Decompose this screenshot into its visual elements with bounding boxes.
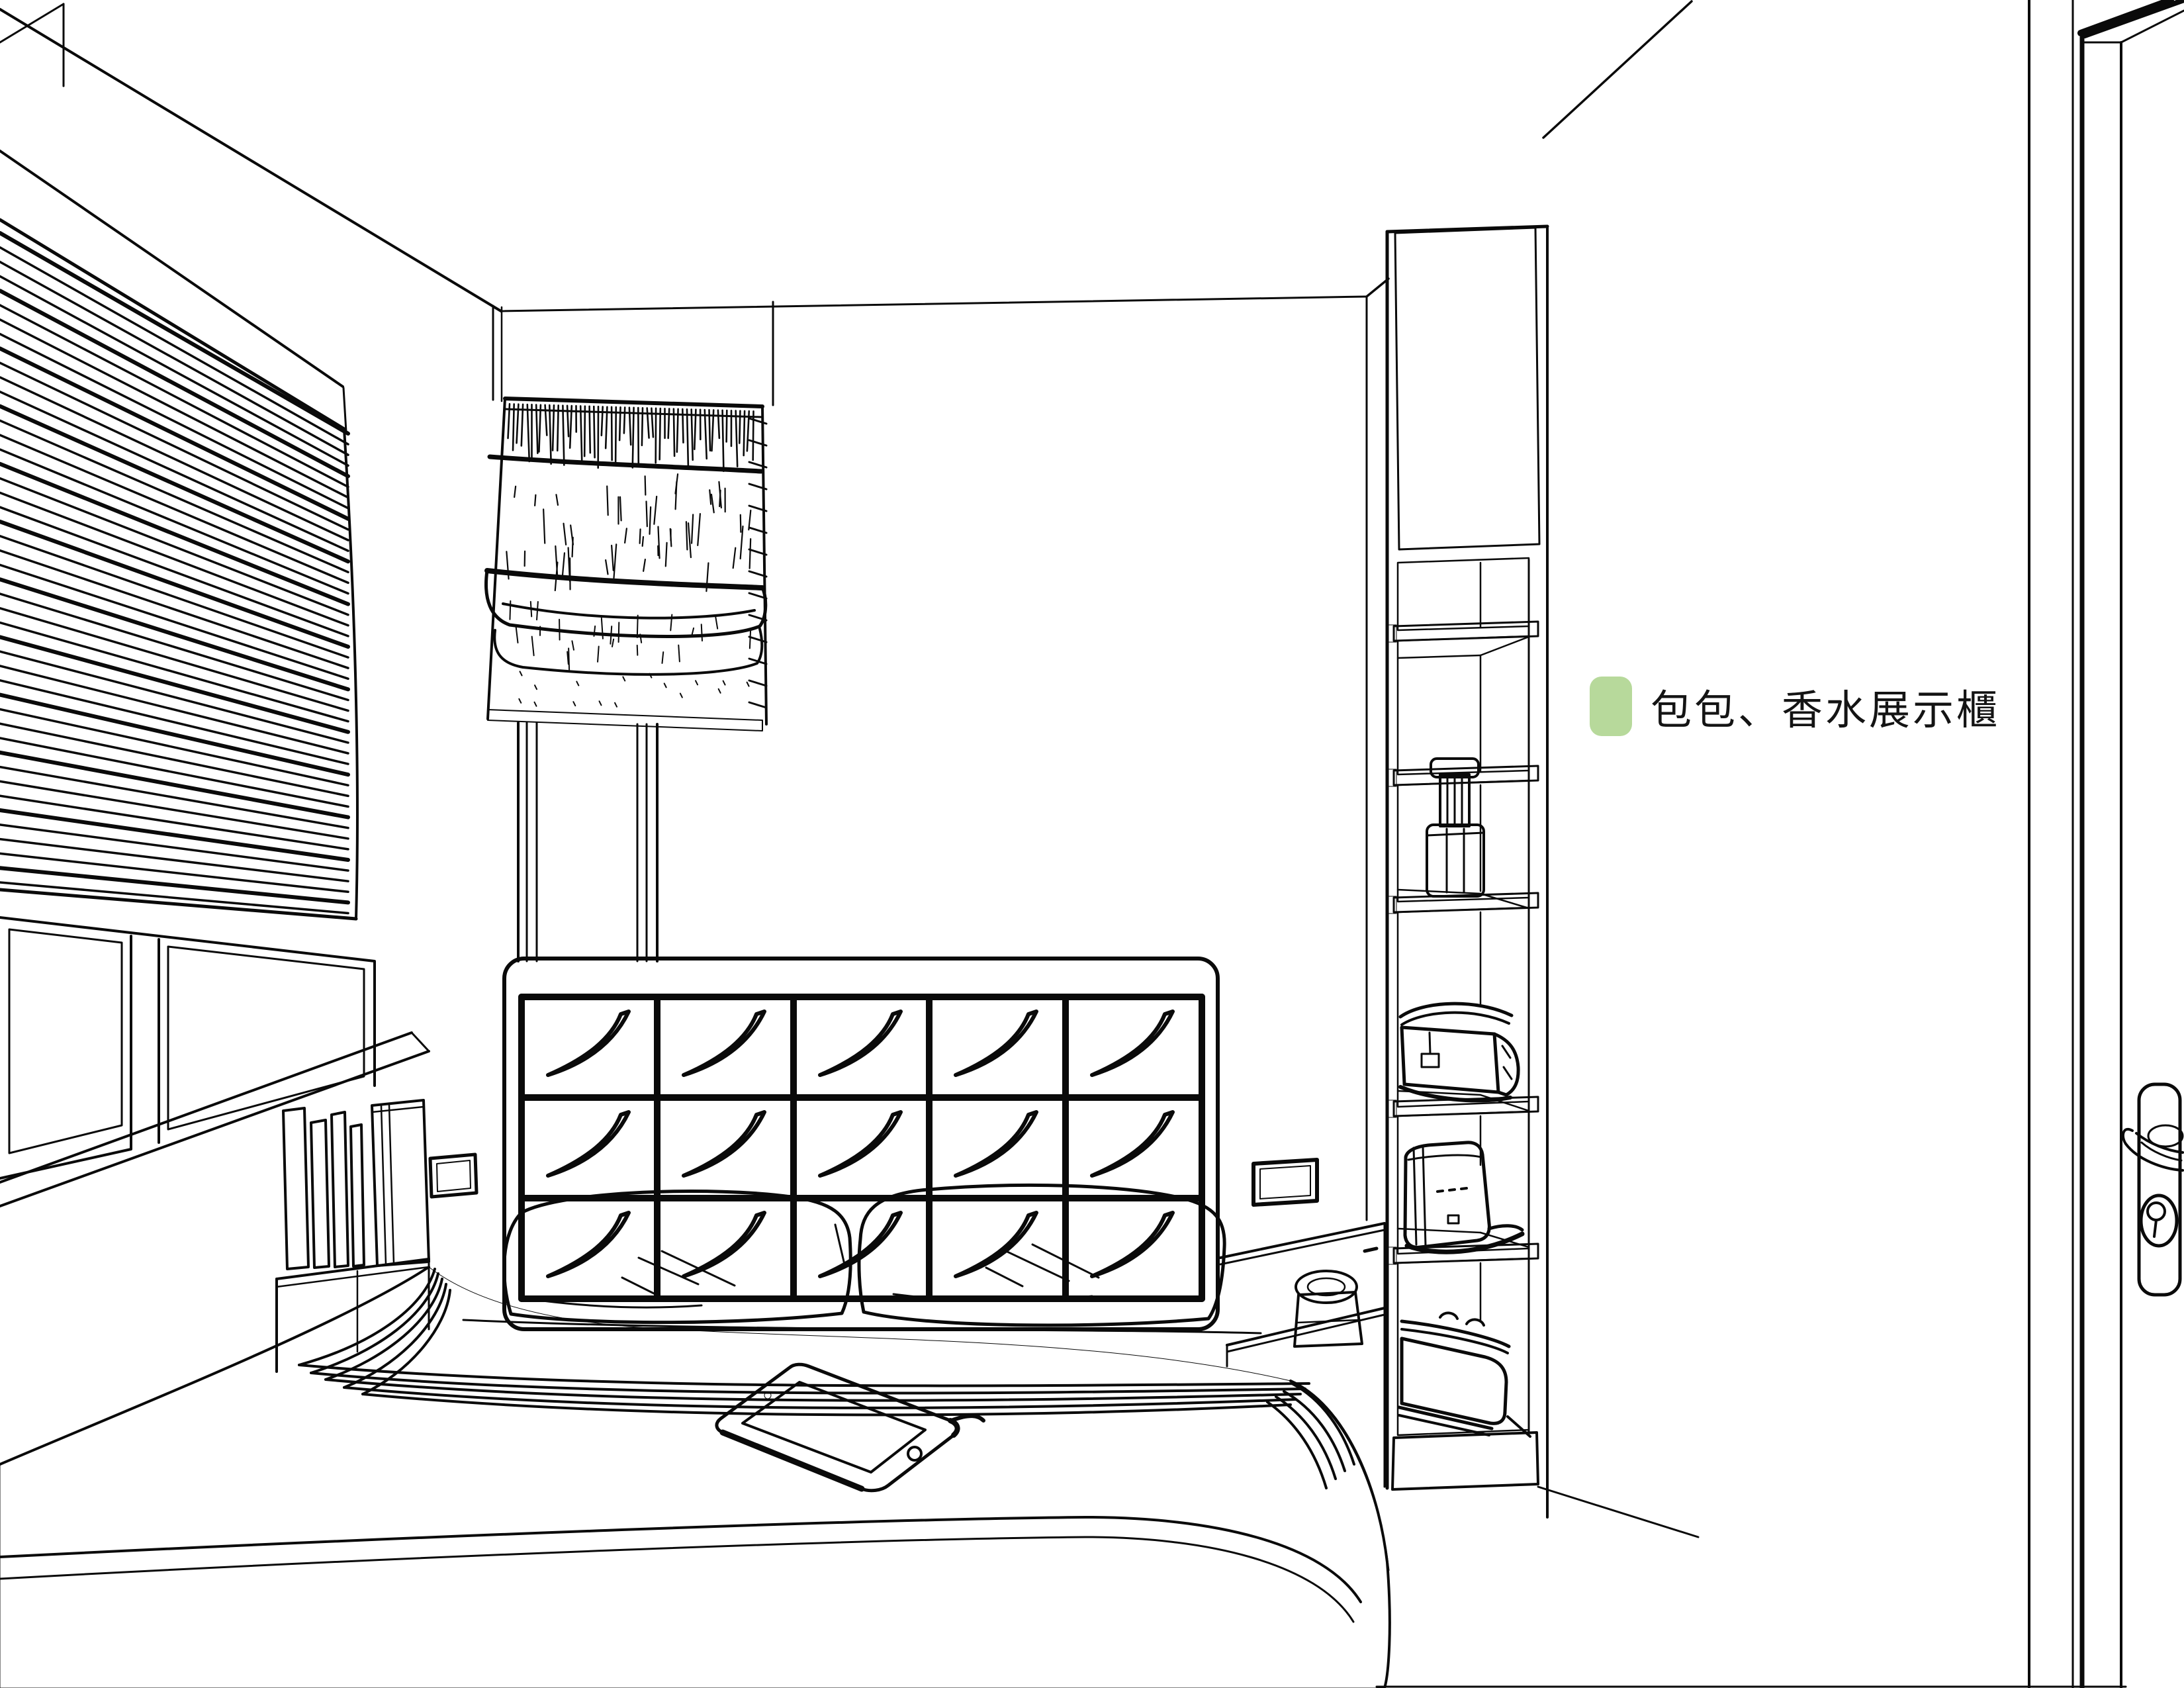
alarm-clock [1295,1271,1362,1346]
pillow-right [859,1185,1224,1325]
tufted-headboard [504,959,1218,1329]
door [2029,0,2184,1688]
handbag [1405,1143,1522,1252]
suitcase [1399,1313,1530,1436]
legend-color-swatch [1590,677,1632,736]
wall-switch-right [1253,1160,1317,1205]
bedside-shelf-left [277,1100,429,1372]
keyhole-icon [2141,1196,2177,1246]
legend: 包包、香水展示櫃 [1590,677,2000,736]
tablet-on-bed [717,1364,983,1491]
home-button-icon [908,1447,921,1460]
blind-slats [0,233,348,914]
books [283,1100,429,1269]
scene-rendering [0,0,2184,1688]
ceiling-and-wall-lines [0,1,1692,1220]
wall-switch-left [430,1154,477,1197]
perfume-bottle [1427,759,1484,896]
shade-fabric-texture [506,404,766,708]
cabinet-plinth [1392,1432,1538,1489]
floor-lines [1377,1487,2126,1687]
door-handle [2123,1084,2183,1295]
bedside-counter [1220,1223,1385,1487]
cabinet-door-panel [1395,228,1539,549]
display-cabinet [1387,226,1547,1517]
clutch-bag [1400,1004,1518,1100]
roman-shade-window [486,302,773,961]
pleated-blind-window [0,220,429,1206]
legend-label: 包包、香水展示櫃 [1651,677,2000,736]
cabinet-shelves [1388,622,1538,1264]
